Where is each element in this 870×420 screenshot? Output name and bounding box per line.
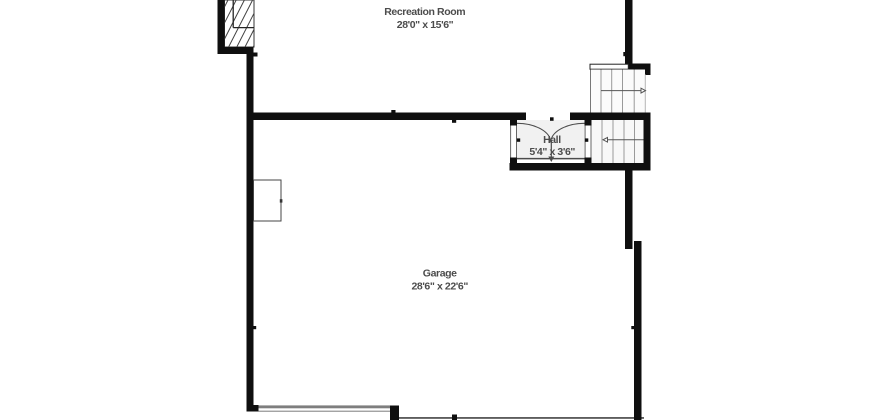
svg-text:Recreation Room: Recreation Room — [384, 6, 465, 18]
svg-text:Hall: Hall — [543, 134, 561, 146]
svg-text:Garage: Garage — [423, 267, 457, 279]
svg-text:28'0" x 15'6": 28'0" x 15'6" — [397, 19, 454, 31]
svg-text:28'6" x 22'6": 28'6" x 22'6" — [411, 280, 468, 292]
svg-text:5'4" x 3'6": 5'4" x 3'6" — [529, 146, 575, 158]
